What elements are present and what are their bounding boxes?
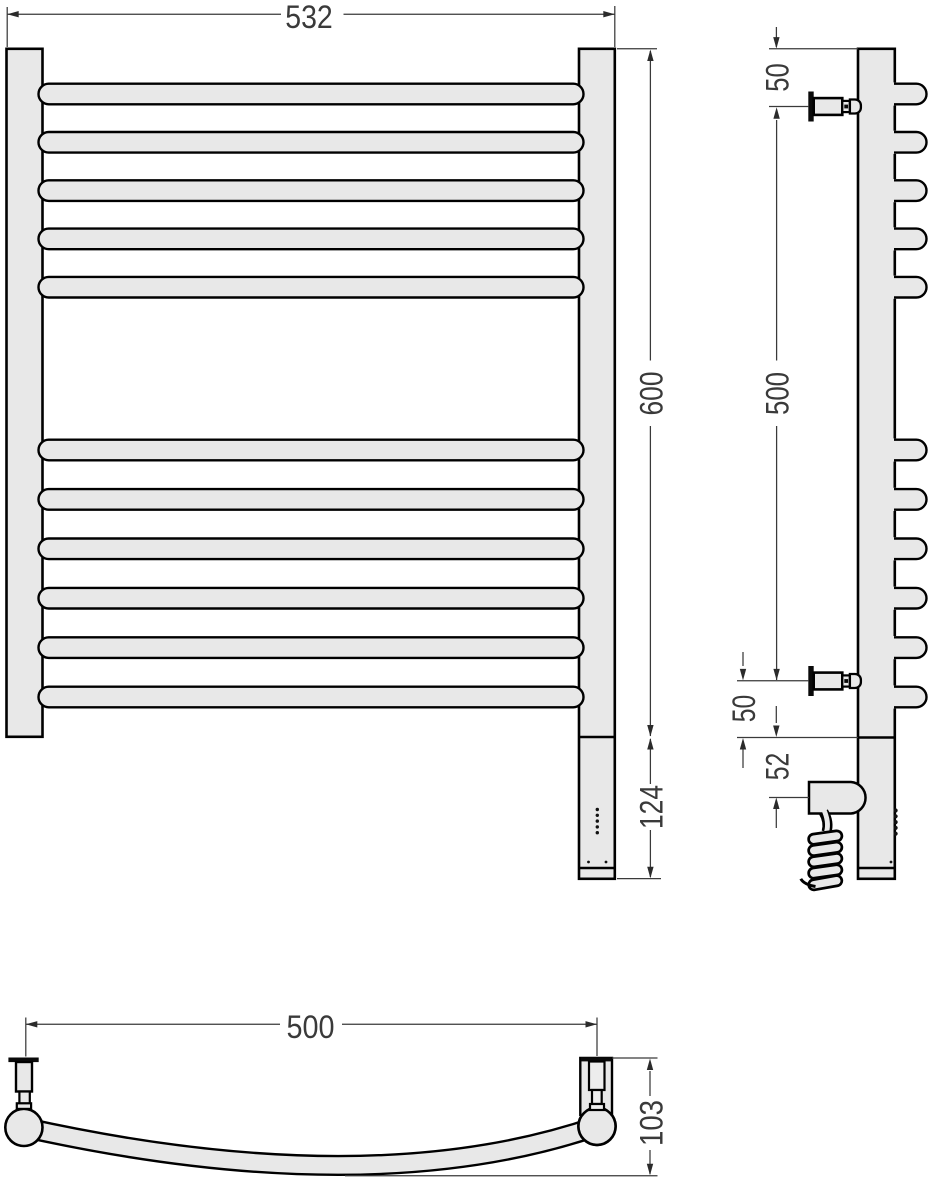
- svg-text:50: 50: [726, 695, 762, 723]
- svg-text:103: 103: [634, 1100, 670, 1146]
- svg-text:500: 500: [287, 1009, 335, 1045]
- svg-text:50: 50: [760, 63, 796, 92]
- svg-text:52: 52: [760, 753, 796, 781]
- svg-text:124: 124: [633, 785, 669, 829]
- svg-text:532: 532: [285, 0, 333, 35]
- svg-text:500: 500: [760, 372, 796, 415]
- svg-text:600: 600: [633, 372, 669, 416]
